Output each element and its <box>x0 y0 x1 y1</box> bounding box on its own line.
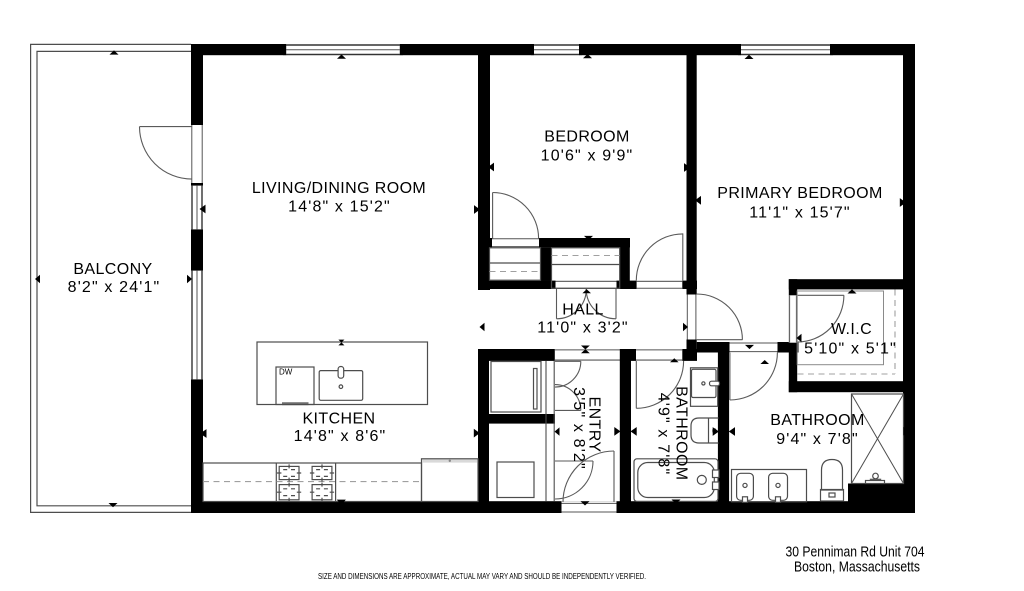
svg-text:10'6" x 9'9": 10'6" x 9'9" <box>541 148 634 165</box>
svg-text:14'8" x 15'2": 14'8" x 15'2" <box>288 199 391 216</box>
svg-text:4'9" x 7'8": 4'9" x 7'8" <box>655 393 672 476</box>
svg-text:DW: DW <box>279 368 293 377</box>
svg-text:5'10" x 5'1": 5'10" x 5'1" <box>804 341 897 358</box>
svg-text:8'2" x 24'1": 8'2" x 24'1" <box>68 279 161 296</box>
svg-text:14'8" x 8'6": 14'8" x 8'6" <box>294 428 387 445</box>
svg-text:30 Penniman Rd Unit 704: 30 Penniman Rd Unit 704 <box>786 545 925 561</box>
svg-text:BEDROOM: BEDROOM <box>544 129 629 146</box>
svg-text:BATHROOM: BATHROOM <box>770 412 864 429</box>
svg-text:BATHROOM: BATHROOM <box>672 386 689 480</box>
svg-text:11'1" x 15'7": 11'1" x 15'7" <box>749 205 851 222</box>
svg-text:PRIMARY BEDROOM: PRIMARY BEDROOM <box>717 185 882 202</box>
svg-text:SIZE AND DIMENSIONS ARE APPROX: SIZE AND DIMENSIONS ARE APPROXIMATE, ACT… <box>318 572 646 581</box>
svg-text:BALCONY: BALCONY <box>73 261 152 278</box>
svg-text:LIVING/DINING ROOM: LIVING/DINING ROOM <box>252 180 426 197</box>
svg-text:Boston, Massachusetts: Boston, Massachusetts <box>794 560 920 576</box>
svg-text:HALL: HALL <box>562 302 604 319</box>
svg-text:9'4" x 7'8": 9'4" x 7'8" <box>776 431 859 448</box>
svg-text:3'5" x 8'2": 3'5" x 8'2" <box>570 387 587 470</box>
svg-text:KITCHEN: KITCHEN <box>302 411 375 428</box>
svg-text:W.I.C: W.I.C <box>831 321 872 338</box>
svg-text:11'0" x 3'2": 11'0" x 3'2" <box>537 320 628 337</box>
